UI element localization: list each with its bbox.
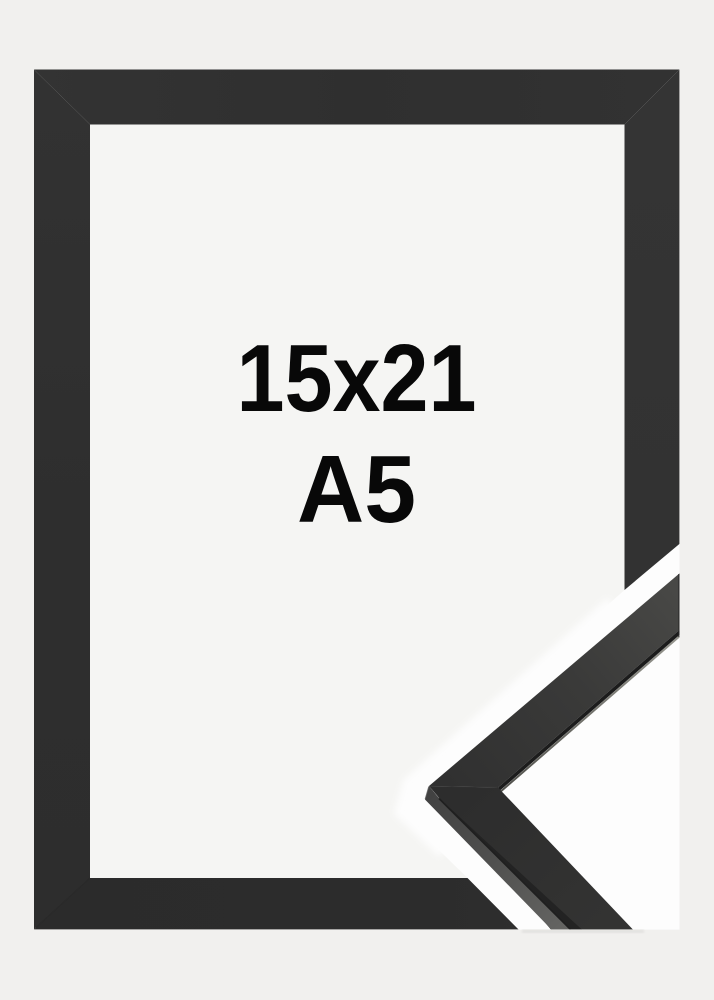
svg-text:15x21: 15x21: [237, 325, 477, 432]
svg-text:A5: A5: [297, 436, 416, 543]
